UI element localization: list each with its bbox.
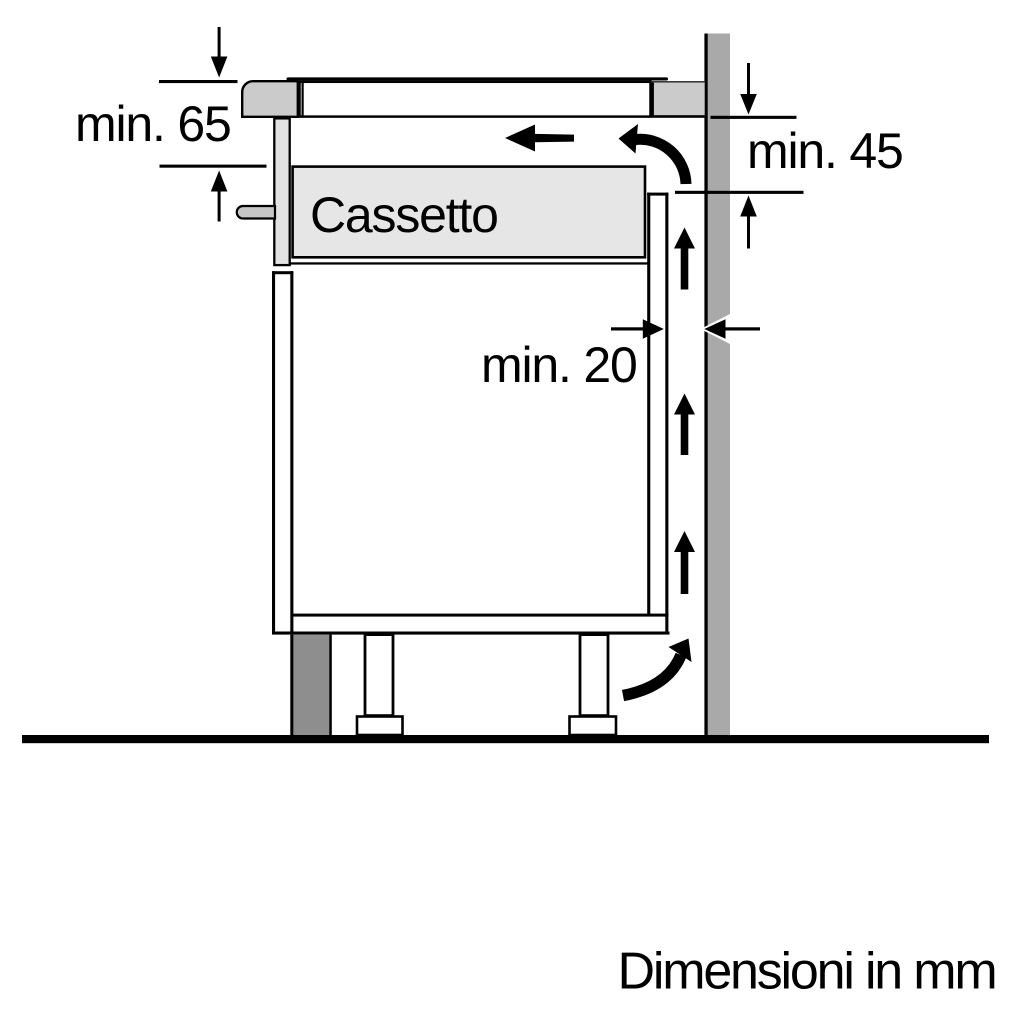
svg-text:Cassetto: Cassetto (310, 187, 498, 243)
svg-text:min. 65: min. 65 (75, 96, 231, 152)
svg-text:Dimensioni in mm: Dimensioni in mm (618, 943, 996, 1001)
svg-text:min. 45: min. 45 (747, 123, 903, 179)
svg-text:min. 20: min. 20 (481, 337, 637, 393)
